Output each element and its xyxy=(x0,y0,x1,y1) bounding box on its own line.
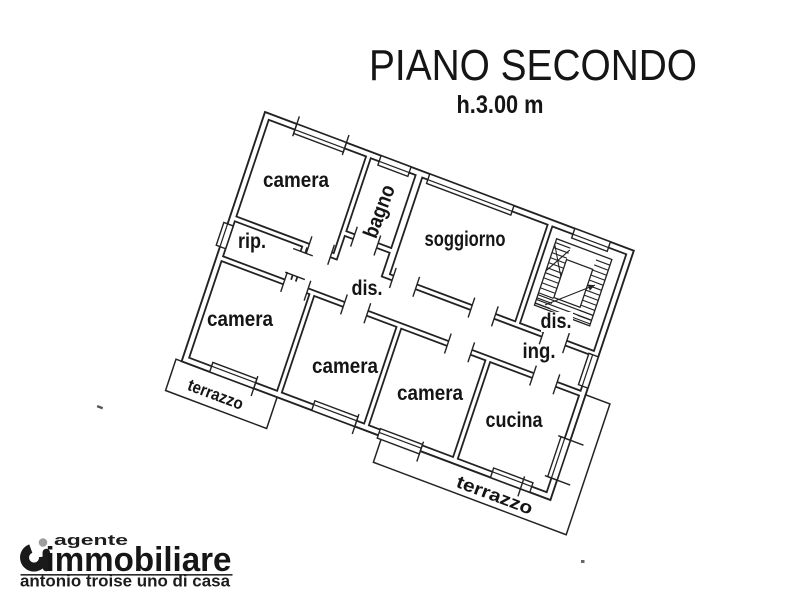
svg-text:antonio troise uno di casa: antonio troise uno di casa xyxy=(20,572,231,591)
svg-text:rip.: rip. xyxy=(238,230,266,253)
svg-text:soggiorno: soggiorno xyxy=(425,228,506,251)
svg-text:h.3.00 m: h.3.00 m xyxy=(457,91,544,119)
svg-text:PIANO SECONDO: PIANO SECONDO xyxy=(369,41,697,90)
svg-text:camera: camera xyxy=(312,355,378,378)
svg-text:camera: camera xyxy=(263,169,329,192)
svg-text:camera: camera xyxy=(207,308,273,331)
svg-text:camera: camera xyxy=(397,382,463,405)
svg-text:cucina: cucina xyxy=(486,409,543,432)
svg-text:dis.: dis. xyxy=(352,277,383,300)
svg-text:dis.: dis. xyxy=(541,310,572,333)
svg-text:ing.: ing. xyxy=(523,340,556,363)
